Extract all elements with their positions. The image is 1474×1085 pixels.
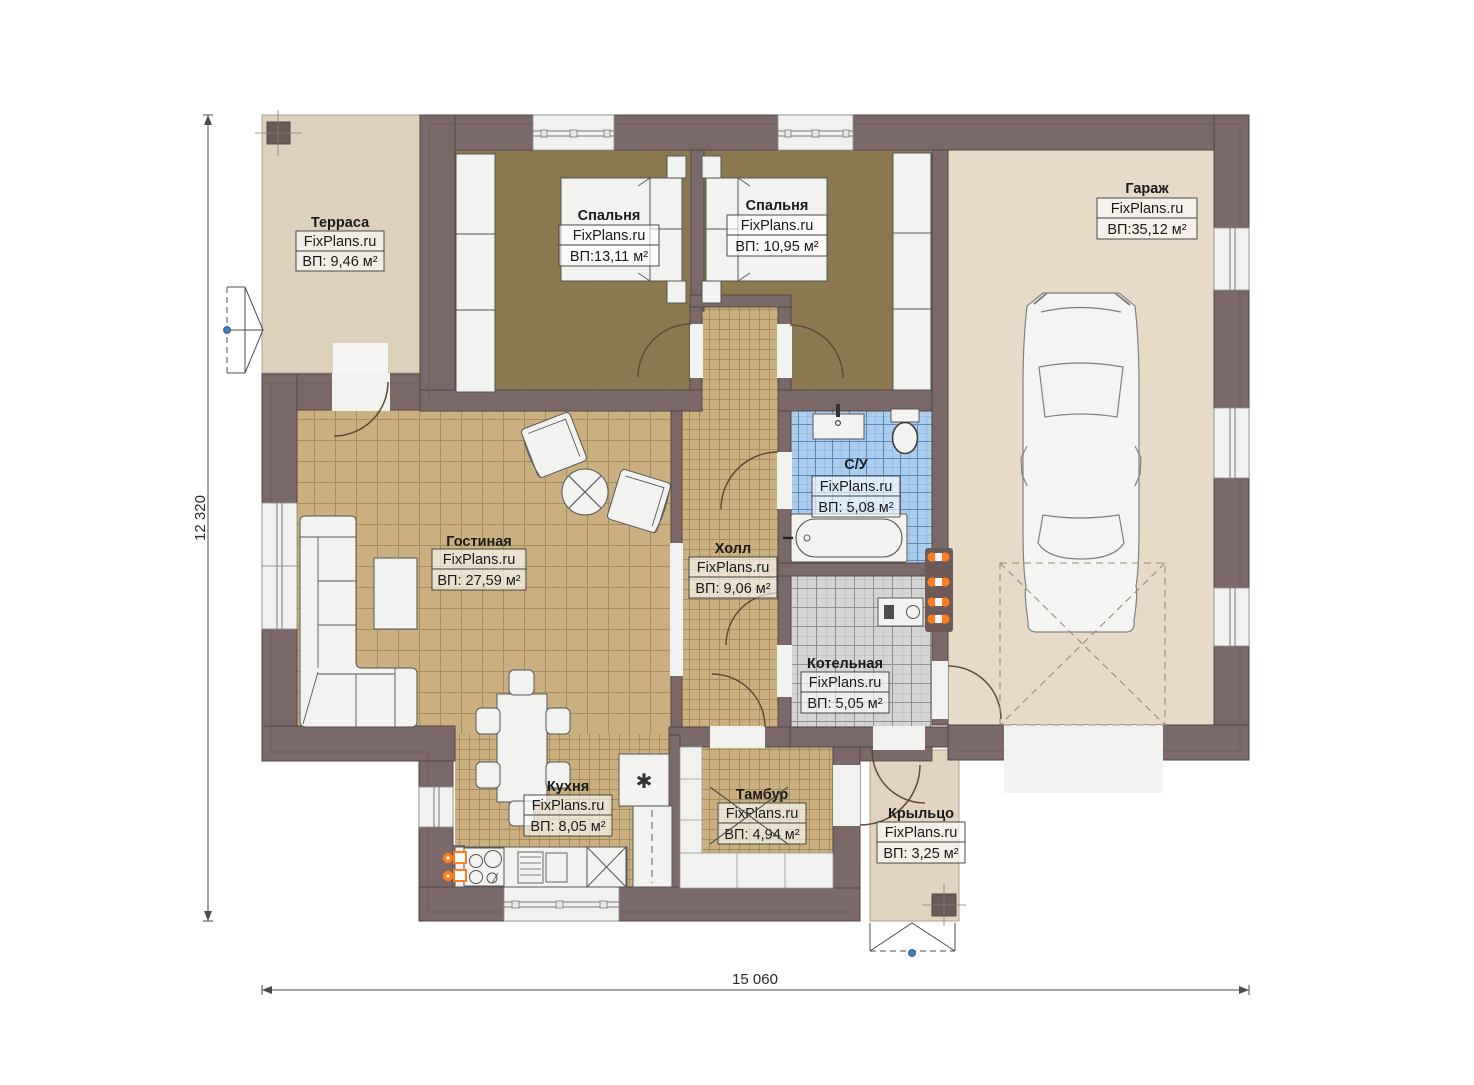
svg-text:FixPlans.ru: FixPlans.ru <box>809 675 882 691</box>
svg-text:Котельная: Котельная <box>807 656 883 672</box>
svg-text:FixPlans.ru: FixPlans.ru <box>820 479 893 495</box>
svg-text:ВП: 4,94 м²: ВП: 4,94 м² <box>724 827 799 843</box>
svg-text:FixPlans.ru: FixPlans.ru <box>741 218 814 234</box>
svg-text:Крыльцо: Крыльцо <box>888 806 954 822</box>
svg-text:ВП: 5,08 м²: ВП: 5,08 м² <box>818 500 893 516</box>
svg-text:15 060: 15 060 <box>732 971 778 988</box>
svg-text:ВП: 9,06 м²: ВП: 9,06 м² <box>695 581 770 597</box>
svg-text:Спальня: Спальня <box>578 208 641 224</box>
svg-text:ВП: 8,05 м²: ВП: 8,05 м² <box>530 819 605 835</box>
svg-text:ВП: 5,05 м²: ВП: 5,05 м² <box>807 696 882 712</box>
svg-text:FixPlans.ru: FixPlans.ru <box>573 228 646 244</box>
svg-text:Спальня: Спальня <box>746 198 809 214</box>
svg-text:Гараж: Гараж <box>1125 181 1169 197</box>
svg-text:Терраса: Терраса <box>311 215 370 231</box>
svg-text:FixPlans.ru: FixPlans.ru <box>885 825 958 841</box>
svg-text:ВП: 27,59 м²: ВП: 27,59 м² <box>437 573 520 589</box>
svg-text:FixPlans.ru: FixPlans.ru <box>726 806 799 822</box>
svg-text:FixPlans.ru: FixPlans.ru <box>532 798 605 814</box>
svg-text:FixPlans.ru: FixPlans.ru <box>304 234 377 250</box>
svg-text:FixPlans.ru: FixPlans.ru <box>1111 201 1184 217</box>
svg-text:FixPlans.ru: FixPlans.ru <box>697 560 770 576</box>
svg-text:Холл: Холл <box>715 541 751 557</box>
svg-text:Тамбур: Тамбур <box>736 787 789 803</box>
svg-text:✱: ✱ <box>636 771 653 793</box>
svg-text:Гостиная: Гостиная <box>446 534 512 550</box>
svg-text:ВП: 9,46 м²: ВП: 9,46 м² <box>302 254 377 270</box>
svg-text:С/У: С/У <box>844 457 869 473</box>
svg-text:ВП: 3,25 м²: ВП: 3,25 м² <box>883 846 958 862</box>
svg-text:12 320: 12 320 <box>192 495 209 541</box>
svg-text:ВП:13,11 м²: ВП:13,11 м² <box>570 249 648 265</box>
svg-text:ВП:35,12 м²: ВП:35,12 м² <box>1107 222 1186 238</box>
svg-text:Кухня: Кухня <box>547 779 589 795</box>
svg-text:FixPlans.ru: FixPlans.ru <box>443 552 516 568</box>
svg-text:ВП: 10,95 м²: ВП: 10,95 м² <box>735 239 818 255</box>
